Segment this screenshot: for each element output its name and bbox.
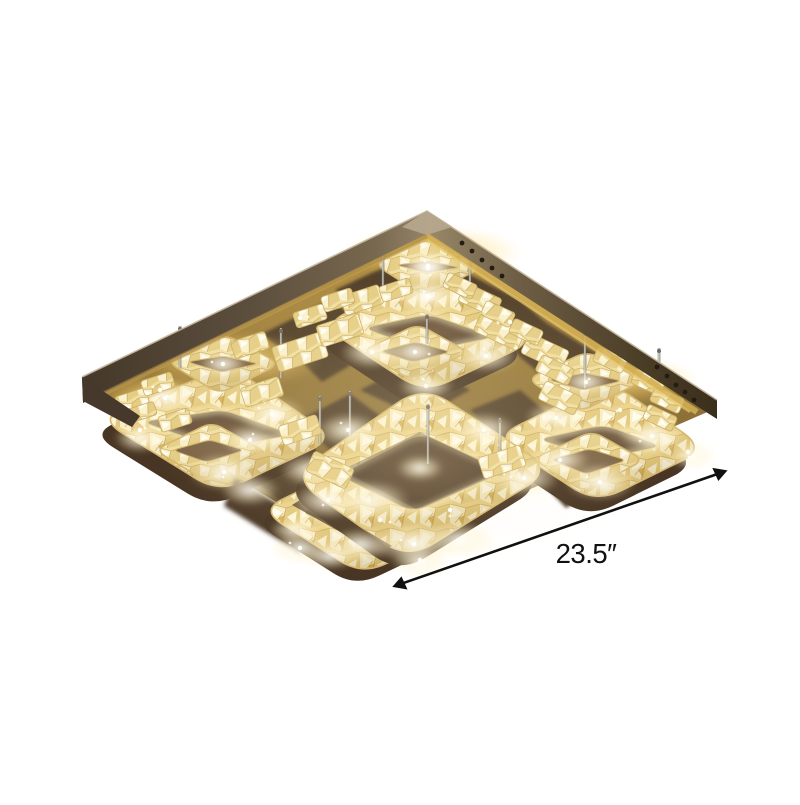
svg-text:23.5″: 23.5″ (556, 538, 618, 569)
